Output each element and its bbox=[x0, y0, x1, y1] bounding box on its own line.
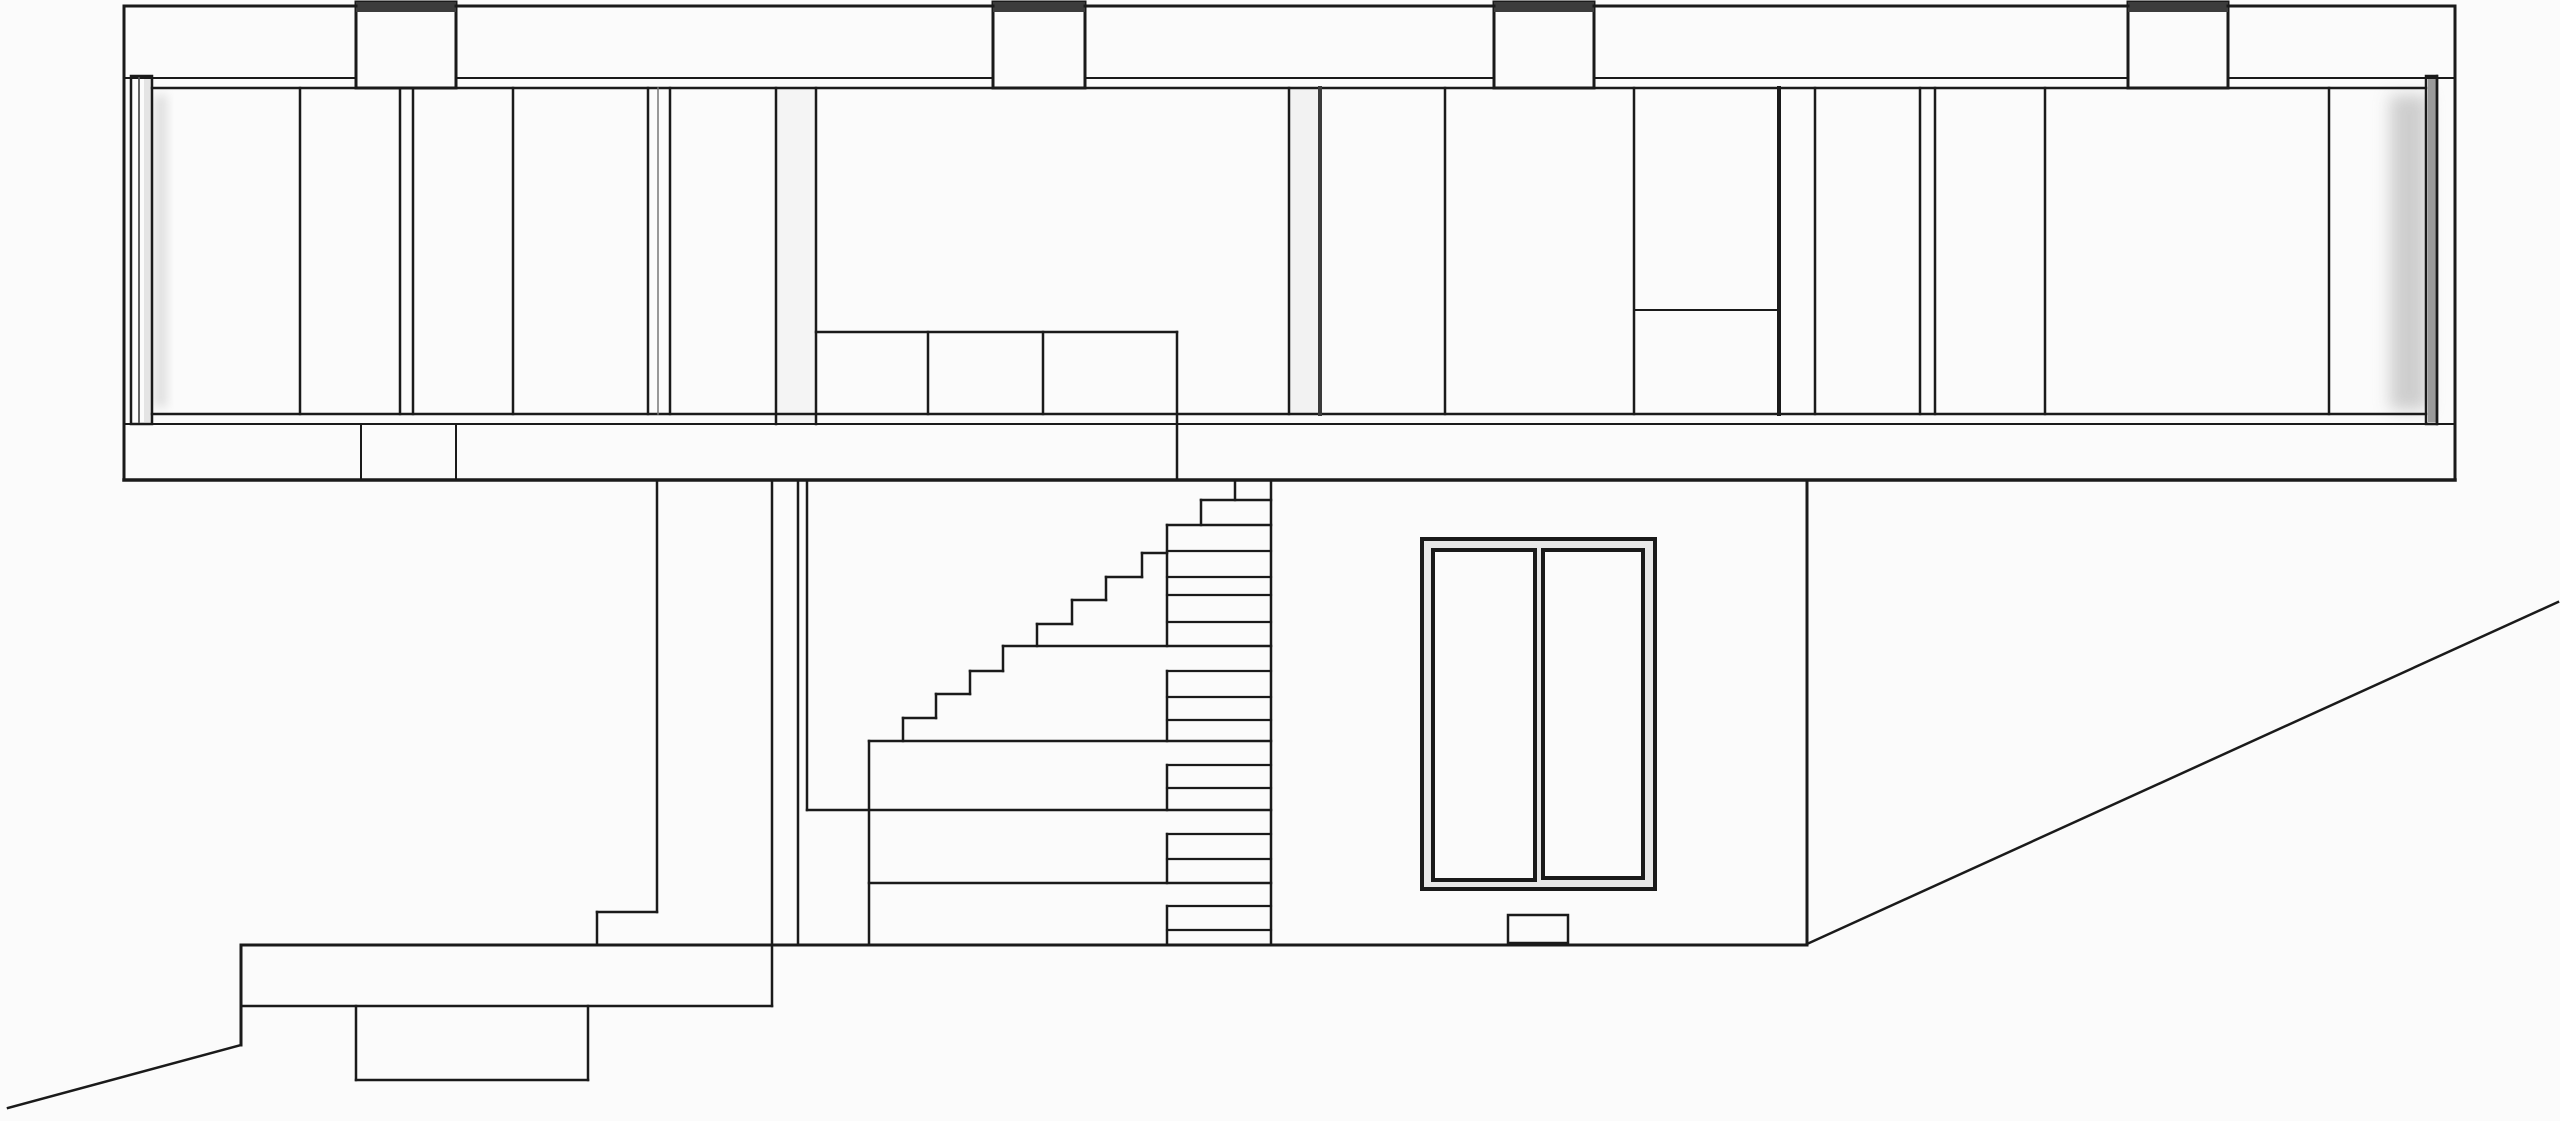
roof-monitor-block-4 bbox=[2128, 2, 2228, 88]
roof-monitor-cap-3 bbox=[1494, 2, 1594, 12]
roof-monitor-cap-1 bbox=[356, 2, 456, 12]
building-section-elevation-drawing bbox=[0, 0, 2560, 1121]
right-window-frame-fill bbox=[2428, 78, 2437, 422]
door-leaf-right bbox=[1543, 550, 1643, 878]
roof-monitor-cap-2 bbox=[993, 2, 1085, 12]
roof-monitor-block-3 bbox=[1494, 2, 1594, 88]
left-frame-soft-shadow bbox=[154, 95, 167, 407]
roof-monitor-block-2 bbox=[993, 2, 1085, 88]
roof-monitor-cap-4 bbox=[2128, 2, 2228, 12]
double-mullion-face bbox=[1289, 88, 1320, 414]
door-leaf-left bbox=[1433, 550, 1535, 880]
pier-mullion-face bbox=[776, 88, 816, 424]
right-frame-soft-shadow bbox=[2390, 95, 2428, 410]
paper-background bbox=[0, 0, 2560, 1121]
architectural-drawing-page bbox=[0, 0, 2560, 1121]
roof-monitor-block-1 bbox=[356, 2, 456, 88]
door-threshold-vent bbox=[1508, 915, 1568, 943]
